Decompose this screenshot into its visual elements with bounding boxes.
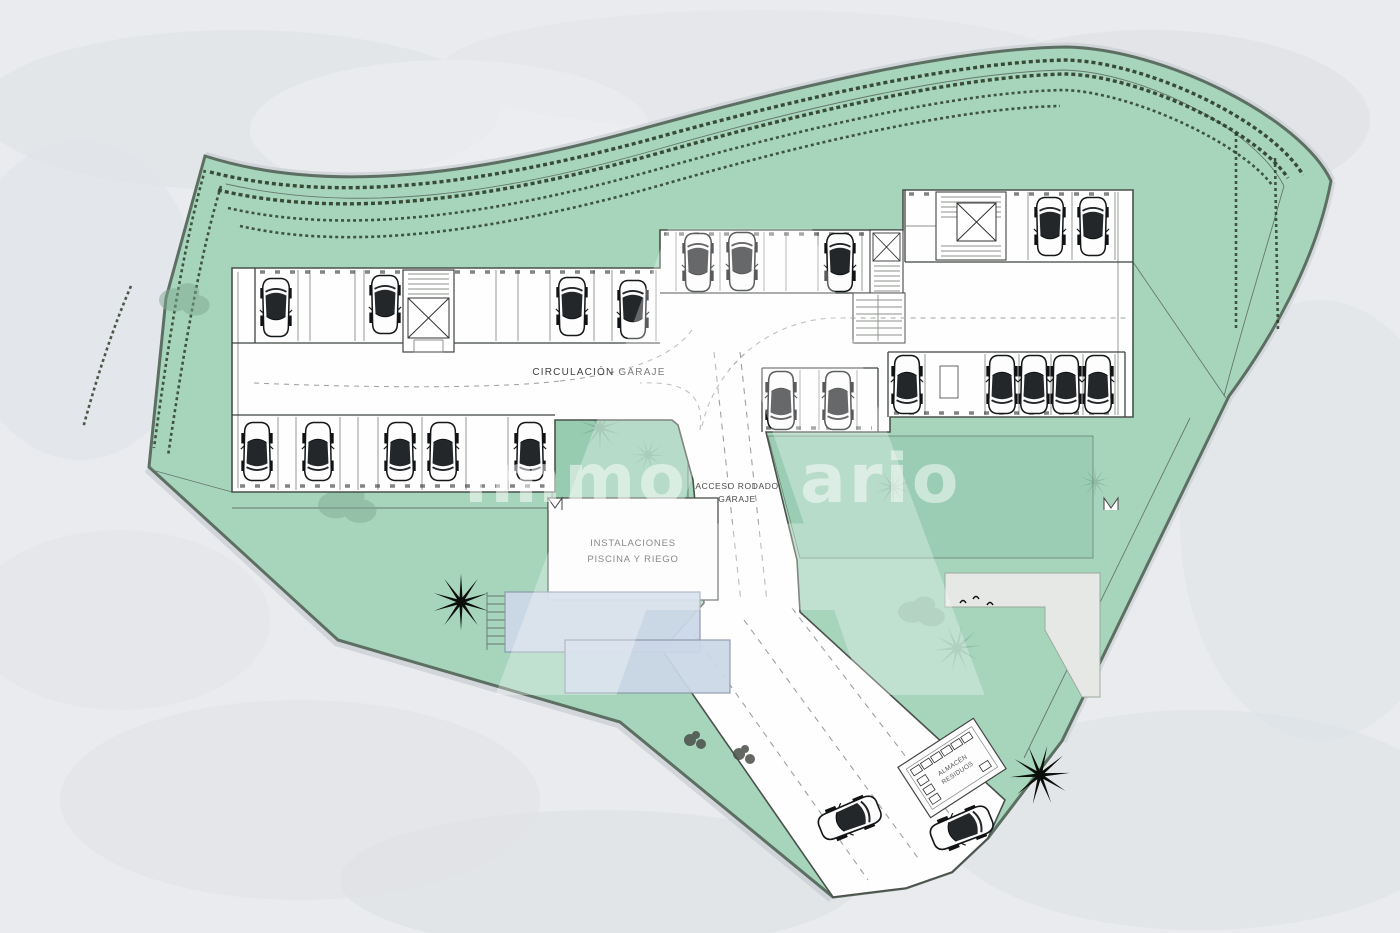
staircase-icon [403,270,454,352]
car-icon [427,423,459,481]
car-icon [1082,356,1114,414]
watermark: A immo ario [464,101,992,846]
car-icon [260,279,292,337]
car-icon [1034,198,1066,256]
site-plan-page: CIRCULACIÓN GARAJE ACCESO RODADO GARAJE … [0,0,1400,933]
car-icon [369,276,401,334]
car-icon [384,423,416,481]
watermark-text-left: immo [464,440,688,519]
watermark-text-right: ario [800,440,961,519]
car-icon [986,356,1018,414]
car-icon [302,423,334,481]
car-icon [241,423,273,481]
car-icon [1018,356,1050,414]
car-icon [1050,356,1082,414]
site-plan-canvas: CIRCULACIÓN GARAJE ACCESO RODADO GARAJE … [0,0,1400,933]
car-icon [1077,198,1109,256]
